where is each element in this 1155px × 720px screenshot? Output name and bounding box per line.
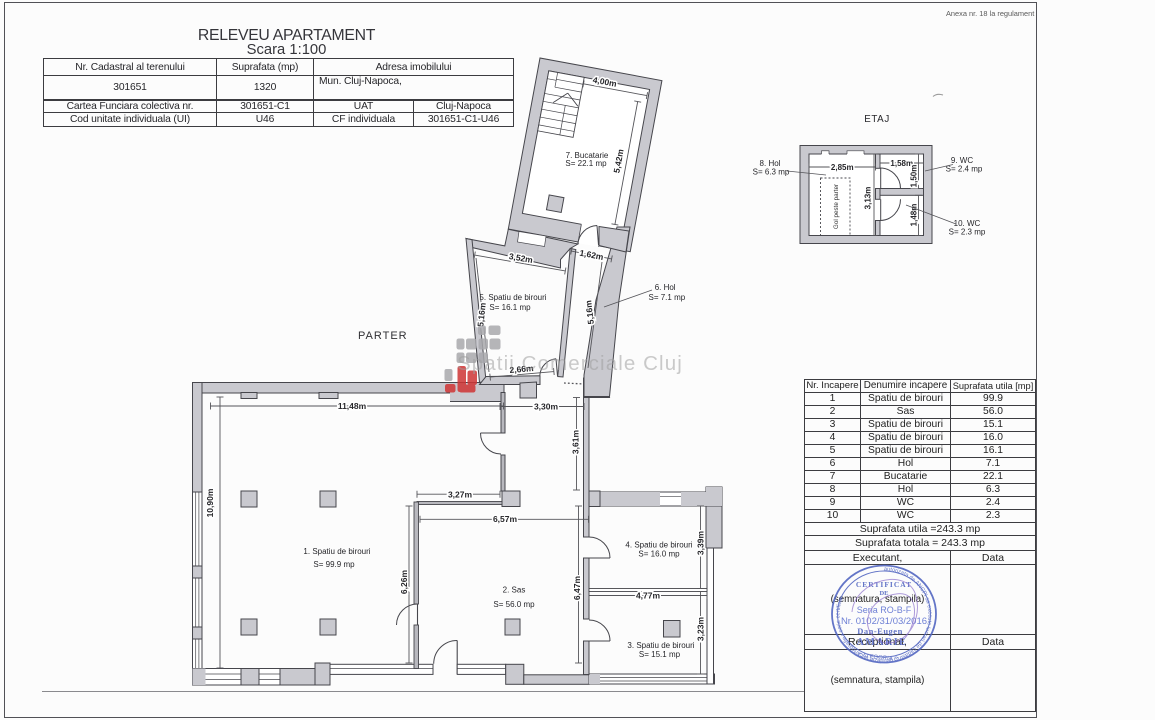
- svg-text:Seria RO-B-F: Seria RO-B-F: [857, 605, 912, 615]
- svg-text:Dan-Eugen: Dan-Eugen: [857, 626, 903, 636]
- svg-text:AMARIE: AMARIE: [857, 637, 908, 648]
